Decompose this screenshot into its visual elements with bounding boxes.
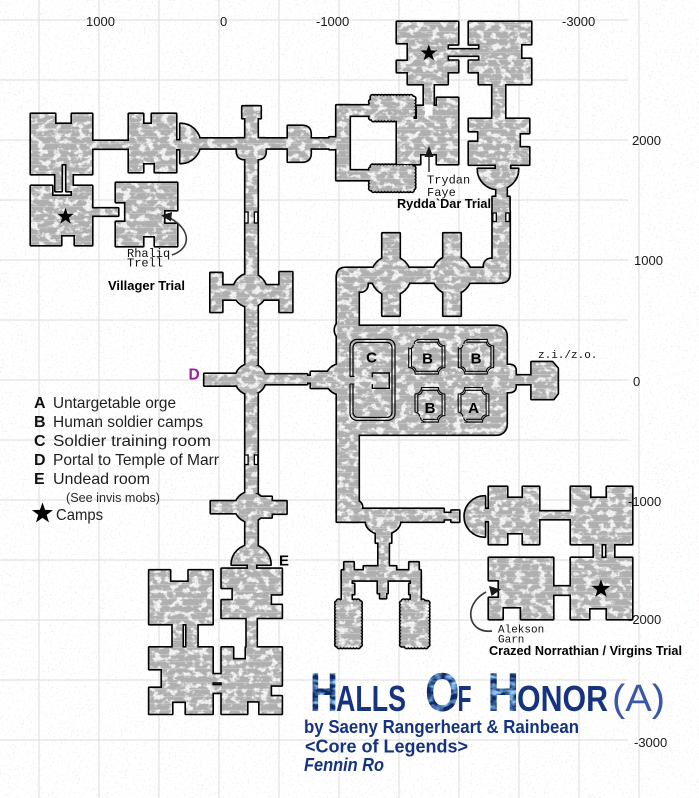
svg-text:ONOR: ONOR [517, 678, 608, 719]
svg-text:Camps: Camps [56, 507, 103, 524]
svg-text:(A): (A) [612, 678, 665, 720]
svg-text:C: C [34, 433, 46, 450]
svg-text:1000: 1000 [86, 14, 115, 29]
svg-text:D: D [189, 366, 200, 383]
svg-text:Human soldier camps: Human soldier camps [53, 414, 203, 431]
svg-text:z.i./z.o.: z.i./z.o. [538, 350, 597, 362]
svg-text:Portal to Temple of Marr: Portal to Temple of Marr [53, 452, 220, 469]
svg-text:B: B [34, 414, 46, 431]
svg-text:E: E [34, 471, 45, 488]
svg-text:0: 0 [633, 374, 640, 389]
svg-text:F: F [458, 678, 472, 719]
svg-text:Untargetable orge: Untargetable orge [53, 395, 176, 412]
svg-text:<Core of Legends>: <Core of Legends> [305, 736, 468, 757]
svg-text:C: C [366, 350, 377, 367]
svg-text:-3000: -3000 [562, 14, 595, 29]
svg-text:Faye: Faye [427, 186, 456, 200]
svg-text:H: H [310, 661, 338, 723]
svg-text:B: B [471, 351, 482, 368]
svg-text:by Saeny Rangerheart & Rainbea: by Saeny Rangerheart & Rainbean [304, 716, 579, 737]
svg-text:H: H [488, 661, 520, 723]
svg-text:0: 0 [220, 14, 227, 29]
svg-text:(See invis mobs): (See invis mobs) [66, 490, 160, 505]
svg-text:Garn: Garn [498, 635, 524, 647]
svg-text:Fennin Ro: Fennin Ro [304, 755, 384, 775]
svg-text:A: A [468, 400, 479, 417]
svg-text:2000: 2000 [632, 133, 661, 148]
svg-text:1000: 1000 [634, 253, 663, 268]
svg-text:-3000: -3000 [634, 735, 667, 750]
svg-text:-1000: -1000 [316, 14, 349, 29]
svg-text:-2000: -2000 [628, 612, 661, 627]
svg-text:B: B [425, 400, 436, 417]
svg-text:Soldier training room: Soldier training room [53, 433, 211, 450]
svg-text:B: B [422, 351, 433, 368]
svg-text:-1000: -1000 [628, 494, 661, 509]
svg-text:ALLS: ALLS [336, 678, 406, 719]
svg-text:O: O [425, 661, 460, 723]
svg-text:Trell: Trell [127, 257, 163, 271]
svg-text:Villager Trial: Villager Trial [108, 278, 185, 293]
svg-text:A: A [34, 395, 46, 412]
svg-text:E: E [279, 553, 289, 570]
svg-text:D: D [34, 452, 46, 469]
svg-text:Undead room: Undead room [53, 471, 150, 488]
